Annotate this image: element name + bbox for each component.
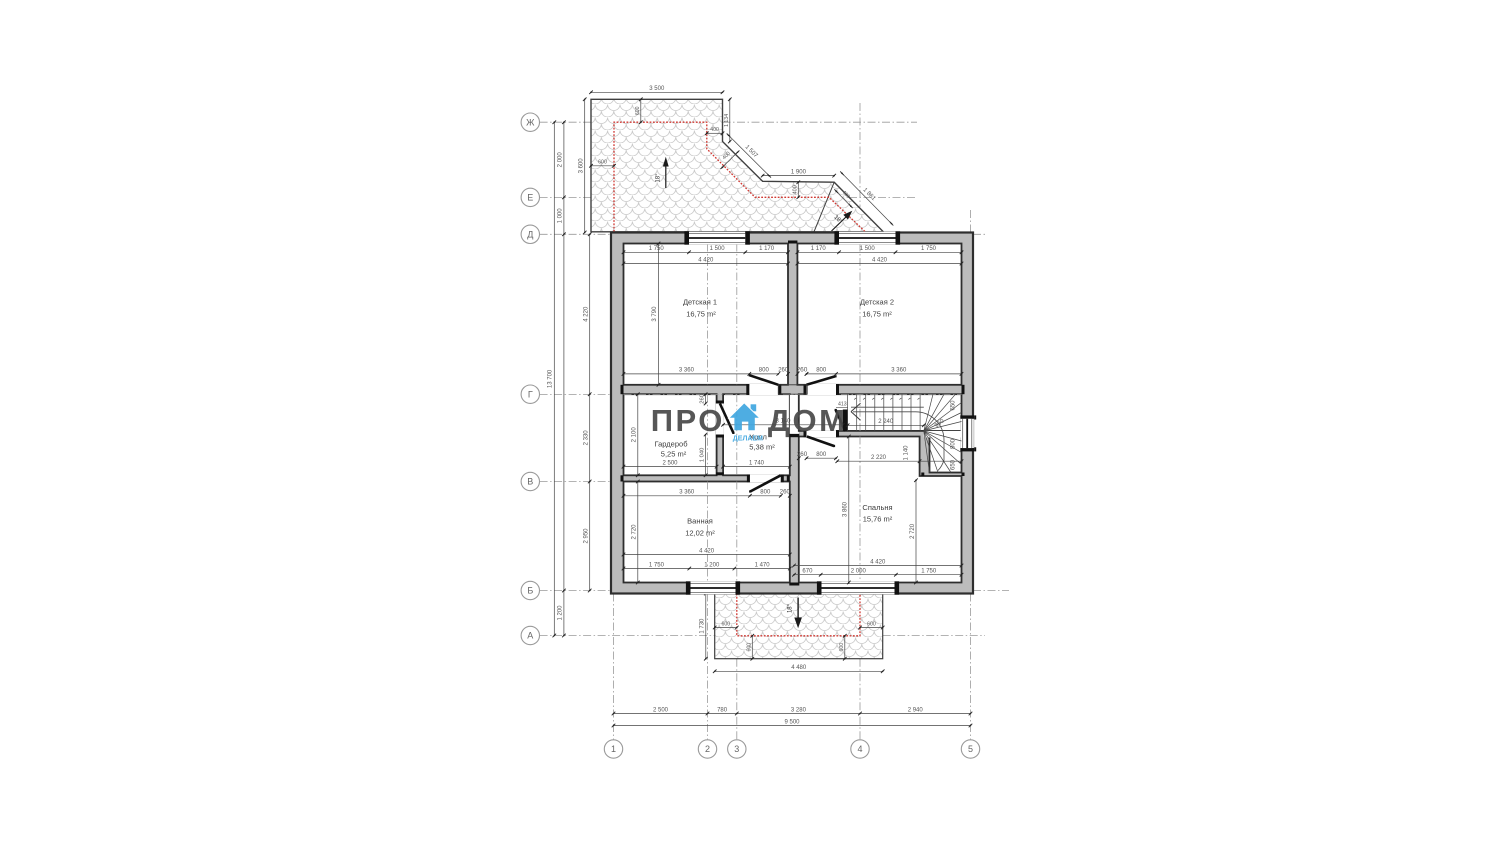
svg-text:3 600: 3 600 [579,158,585,174]
svg-text:3 860: 3 860 [843,501,849,517]
svg-text:1 500: 1 500 [860,246,876,252]
svg-text:1 861: 1 861 [862,187,877,202]
svg-text:2 720: 2 720 [910,523,916,539]
svg-text:Спальня: Спальня [862,503,892,512]
svg-text:1 500: 1 500 [710,246,726,252]
svg-text:2 100: 2 100 [632,427,638,443]
svg-text:1 750: 1 750 [921,569,937,575]
svg-text:800: 800 [759,368,770,374]
svg-text:800: 800 [816,452,827,458]
svg-text:400: 400 [792,185,798,194]
svg-text:3: 3 [734,744,739,754]
svg-text:400: 400 [710,127,719,133]
svg-text:18°: 18° [655,173,661,183]
svg-text:1 730: 1 730 [700,618,706,634]
svg-text:16,75 m²: 16,75 m² [862,310,892,319]
svg-text:Ванная: Ванная [687,517,713,526]
svg-text:2 240: 2 240 [878,419,894,425]
svg-text:9 500: 9 500 [784,719,800,725]
svg-text:1 170: 1 170 [811,246,827,252]
svg-text:ДОМ: ДОМ [768,403,848,438]
svg-text:А: А [527,631,533,641]
svg-text:1 740: 1 740 [749,460,765,466]
svg-text:800: 800 [950,438,956,449]
svg-text:2 500: 2 500 [653,707,669,713]
svg-text:13 700: 13 700 [548,369,554,388]
svg-text:800: 800 [760,490,771,496]
svg-text:1 200: 1 200 [704,562,720,568]
svg-text:3 790: 3 790 [652,306,658,322]
svg-text:Детская 1: Детская 1 [683,298,717,307]
svg-text:15,76 m²: 15,76 m² [863,515,893,524]
svg-text:1 507: 1 507 [744,144,759,159]
svg-text:650: 650 [950,400,956,411]
svg-text:2 330: 2 330 [583,430,589,446]
svg-text:4 420: 4 420 [698,257,714,263]
svg-text:1 470: 1 470 [755,562,771,568]
svg-text:1 134: 1 134 [724,114,730,127]
svg-text:3 360: 3 360 [679,368,695,374]
svg-text:1 750: 1 750 [921,246,937,252]
svg-text:600: 600 [721,621,730,627]
svg-text:2 000: 2 000 [851,569,867,575]
svg-text:5: 5 [968,744,973,754]
svg-text:18°: 18° [788,603,794,613]
svg-text:260: 260 [778,368,789,374]
svg-text:3 500: 3 500 [649,86,665,92]
svg-text:3 360: 3 360 [891,368,907,374]
svg-text:260: 260 [797,451,808,458]
svg-text:1: 1 [611,744,616,754]
svg-text:4 480: 4 480 [791,665,807,671]
svg-text:2 720: 2 720 [632,524,638,540]
svg-text:1 750: 1 750 [649,246,665,252]
svg-text:2 500: 2 500 [662,460,678,466]
svg-text:4 420: 4 420 [699,548,715,554]
svg-text:260: 260 [780,489,791,496]
svg-text:600: 600 [598,160,607,166]
svg-text:2 220: 2 220 [871,455,887,461]
svg-text:4: 4 [857,744,862,754]
svg-text:Д: Д [527,230,533,240]
svg-text:2 950: 2 950 [583,528,589,544]
svg-text:800: 800 [816,368,827,374]
svg-text:1 750: 1 750 [649,562,665,568]
svg-text:600: 600 [746,643,752,652]
svg-text:2: 2 [705,744,710,754]
svg-text:780: 780 [717,707,728,713]
svg-text:Ж: Ж [526,117,535,127]
svg-text:Гардероб: Гардероб [655,440,688,449]
svg-text:5,38 m²: 5,38 m² [749,443,775,452]
svg-text:1 900: 1 900 [791,169,807,175]
svg-text:Б: Б [527,586,533,596]
svg-text:3 360: 3 360 [679,490,695,496]
svg-text:3 280: 3 280 [791,707,807,713]
svg-text:1 140: 1 140 [903,445,909,461]
svg-text:4 220: 4 220 [583,306,589,322]
svg-text:ПРО: ПРО [651,403,725,438]
svg-text:2 000: 2 000 [558,152,564,168]
svg-text:В: В [527,477,533,487]
svg-text:1 040: 1 040 [700,448,706,463]
svg-text:1 200: 1 200 [558,605,564,621]
svg-text:16,75 m²: 16,75 m² [686,310,716,319]
svg-text:2 940: 2 940 [908,707,924,713]
svg-text:Детская 2: Детская 2 [860,298,894,307]
svg-text:5,25 m²: 5,25 m² [661,450,687,459]
svg-text:ДЕЛАЕМ: ДЕЛАЕМ [733,436,763,443]
svg-text:1 000: 1 000 [558,208,564,224]
svg-text:600: 600 [839,643,845,652]
svg-text:4 420: 4 420 [872,257,888,263]
svg-text:670: 670 [802,569,813,575]
svg-text:Г: Г [528,389,533,399]
svg-text:12,02 m²: 12,02 m² [685,529,715,538]
svg-text:1 170: 1 170 [759,246,775,252]
svg-text:600: 600 [867,621,876,627]
svg-text:600: 600 [635,106,641,115]
svg-text:Е: Е [527,193,533,203]
svg-text:4 420: 4 420 [870,559,886,565]
